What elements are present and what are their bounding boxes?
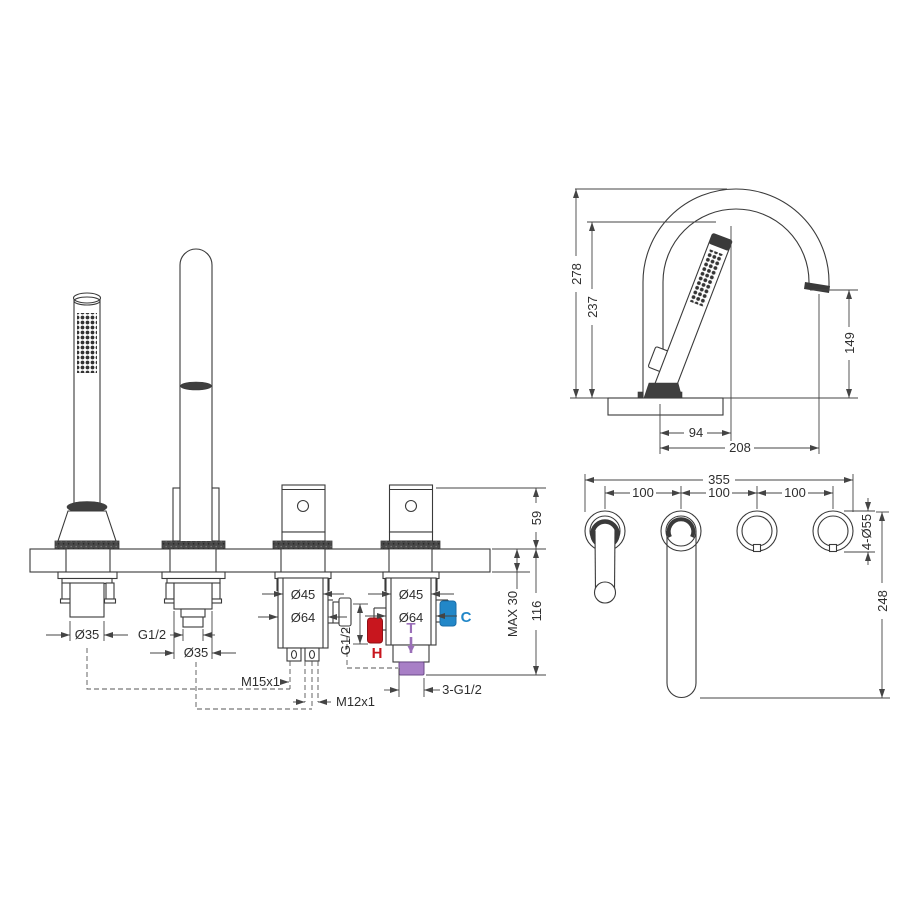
dim-hole1-diameter: Ø35 [75, 627, 100, 642]
technical-drawing-page: Ø35 G1/2 Ø35 Ø45 Ø64 Ø45 Ø64 H T C G1/2 [0, 0, 900, 900]
handshower [55, 293, 119, 549]
handle-notch [754, 545, 761, 552]
handshower-holder-cone [58, 511, 116, 541]
dim-hole-diameters: 4-Ø55 [859, 514, 874, 550]
dim-total-height: 278 [569, 263, 584, 285]
mixed-outlet-port [399, 662, 424, 675]
mix-label: T [406, 620, 415, 637]
side-port-neck [333, 602, 339, 623]
dim-handle-height: 59 [529, 511, 544, 525]
cold-label: C [461, 609, 472, 626]
deck-section-side [608, 398, 723, 415]
handshower-fixing-below-deck [58, 572, 117, 617]
handle-2 [381, 485, 440, 549]
handshower-holder-side [644, 383, 682, 398]
dim-outlet-thread: 3-G1/2 [442, 682, 482, 697]
escutcheon-hole-2 [661, 511, 701, 698]
dim-handshower-offset: 94 [689, 425, 703, 440]
escutcheon-hole-4 [813, 511, 853, 552]
dim-valve2-d45: Ø45 [399, 587, 424, 602]
dim-hole2-thread: G1/2 [138, 627, 166, 642]
plan-view: 355 100 100 100 [585, 472, 890, 698]
hot-label: H [372, 645, 383, 662]
escutcheon-hole-1 [585, 511, 625, 603]
dim-spout-reach: 208 [729, 440, 751, 455]
dim-handshower-height: 237 [585, 296, 600, 318]
dim-depth: 248 [875, 590, 890, 612]
dim-hole2-diameter: Ø35 [184, 645, 209, 660]
hot-inlet-handle [368, 618, 383, 643]
side-port-knob [339, 598, 351, 626]
plan-view-dimensions: 355 100 100 100 [585, 472, 853, 512]
dim-m12-thread: M12x1 [336, 694, 375, 709]
plan-view-dimensions-right: 4-Ø55 248 [700, 498, 890, 698]
dim-valve1-d45: Ø45 [291, 587, 316, 602]
bath-mixer-technical-drawing: Ø35 G1/2 Ø35 Ø45 Ø64 Ø45 Ø64 H T C G1/2 [0, 0, 900, 900]
side-view: 278 237 149 94 208 [569, 189, 858, 455]
handle-1 [273, 485, 332, 549]
escutcheon-hole-3 [737, 511, 777, 552]
cold-inlet-handle [440, 601, 456, 626]
spout-fixing-below-deck [162, 572, 225, 627]
spout-aerator [181, 382, 212, 390]
dim-deck-max-thickness: MAX 30 [505, 591, 520, 637]
dim-valve1-d64: Ø64 [291, 610, 316, 625]
handle-notch [830, 545, 837, 552]
front-view: Ø35 G1/2 Ø35 Ø45 Ø64 Ø45 Ø64 H T C G1/2 [30, 249, 546, 709]
dim-spacing-3: 100 [784, 485, 806, 500]
dim-spacing-2: 100 [708, 485, 730, 500]
spout-column [162, 249, 225, 549]
dim-m15-thread: M15x1 [241, 674, 280, 689]
dim-side-port-thread: G1/2 [338, 627, 353, 655]
spray-face-beads [77, 313, 97, 373]
dim-below-deck-height: 116 [529, 601, 544, 622]
dim-spout-height: 149 [842, 332, 857, 354]
dim-spacing-1: 100 [632, 485, 654, 500]
spout-plan [667, 531, 696, 698]
deck-section [30, 549, 490, 572]
